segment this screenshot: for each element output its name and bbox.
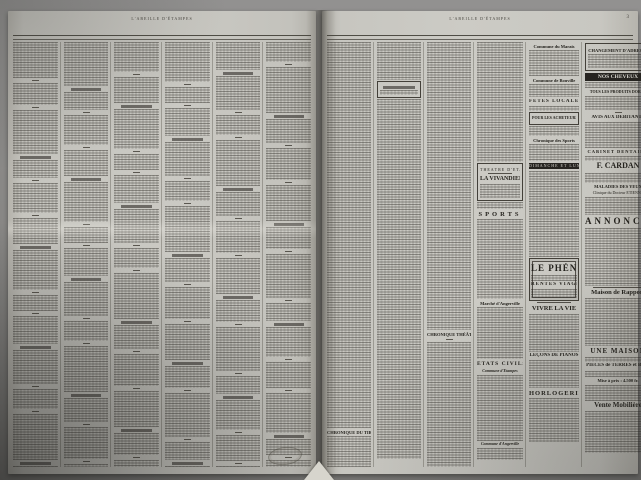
commune-marais-header: Commune du Marais (529, 44, 579, 49)
rentes-viageres-line: RENTES VIAGÈRES (531, 282, 577, 288)
text-block (529, 144, 579, 161)
notice-title-bar (383, 86, 414, 89)
text-block (585, 82, 641, 88)
text-block (64, 42, 109, 86)
separator-dash (83, 424, 90, 425)
page-corner-notch (304, 461, 334, 480)
text-block (585, 156, 641, 161)
commune-bouville-header: Commune de Bouville (529, 78, 579, 83)
cardan-ad-title: F. CARDAN (585, 162, 641, 171)
separator-dash (133, 172, 140, 173)
text-block (585, 173, 641, 183)
text-block (114, 175, 159, 203)
text-block (477, 448, 523, 460)
text-block (531, 289, 577, 298)
doret-ad-title: TOUS LES PRODUITS DORET (585, 90, 641, 94)
paragraph-lead (20, 246, 50, 249)
text-block (64, 150, 109, 176)
text-block (64, 92, 109, 110)
text-block (427, 42, 471, 330)
text-block (165, 258, 210, 282)
left-page-columns (13, 42, 311, 467)
paragraph-lead (223, 396, 253, 399)
text-block (165, 466, 210, 467)
separator-dash (235, 137, 242, 138)
acheteurs-notice-box: POUR LES ACHETEURS (529, 112, 579, 125)
market-report-header: Marché d'Angerville (477, 301, 523, 306)
paragraph-lead (274, 323, 304, 326)
maladies-yeux-title: MALADIES DES YEUX (585, 184, 641, 189)
horlogerie-ad-title: HORLOGERIE (529, 390, 579, 397)
paragraph-lead (20, 156, 50, 159)
text-block (477, 375, 523, 441)
market-table-block (477, 307, 523, 359)
text-column (212, 42, 261, 467)
text-block (216, 140, 261, 186)
text-column (262, 42, 311, 467)
text-block (588, 54, 641, 68)
dimanche-lundi-banner: DIMANCHE ET LUNDI (529, 163, 579, 169)
text-block (529, 50, 579, 76)
text-block (13, 350, 58, 384)
newspaper-page-left: L'ABEILLE D'ÉTAMPES (8, 11, 316, 474)
separator-dash (133, 151, 140, 152)
commune-etampes-subheader: Commune d'Étampes (477, 369, 523, 373)
text-block (585, 371, 641, 377)
separator-dash (235, 324, 242, 325)
separator-dash (285, 251, 292, 252)
vivre-la-vie-ad-title: VIVRE LA VIE (529, 305, 579, 312)
text-block (13, 110, 58, 154)
separator-dash (32, 313, 39, 314)
text-block (114, 109, 159, 149)
text-block (165, 42, 210, 82)
separator-dash (32, 386, 39, 387)
separator-dash (235, 463, 242, 464)
changement-adresse-title: CHANGEMENT D'ADRESSE (588, 48, 641, 53)
paragraph-lead (223, 72, 253, 75)
commune-angerville-subheader: Commune d'Angerville (477, 442, 523, 446)
text-block (216, 192, 261, 216)
separator-dash (184, 284, 191, 285)
separator-dash (83, 318, 90, 319)
text-block (165, 324, 210, 360)
text-block (216, 327, 261, 371)
text-block (529, 398, 579, 442)
text-block (64, 346, 109, 392)
paragraph-lead (274, 435, 304, 438)
running-title-right: L'ABEILLE D'ÉTAMPES (322, 16, 638, 21)
separator-dash (285, 359, 292, 360)
debitants-ad-title: AVIS AUX DÉBITANTS (585, 115, 641, 121)
text-column (60, 42, 109, 467)
text-column: THÉÂTRE D'ÉTAMPES LA VIVANDIÈRE SPORTS M… (473, 42, 523, 467)
text-block (216, 300, 261, 322)
text-block (165, 442, 210, 460)
vente-mobiliere-title: Vente Mobilière (585, 402, 641, 410)
page-number: 3 (627, 15, 630, 20)
text-block (165, 142, 210, 176)
text-column (13, 42, 58, 467)
text-block (13, 389, 58, 409)
separator-dash (235, 432, 242, 433)
text-block (477, 219, 523, 299)
separator-dash (285, 182, 292, 183)
text-block (216, 76, 261, 110)
section-header-etats-civils: ÉTATS CIVILS (477, 361, 523, 367)
text-block (165, 87, 210, 103)
separator-dash (285, 64, 292, 65)
text-block (266, 67, 311, 113)
nos-cheveux-ad-title: NOS CHEVEUX (585, 73, 641, 81)
paragraph-lead (172, 462, 202, 465)
mixed-column: Commune du Marais Commune de Bouville FÊ… (525, 42, 579, 467)
chronique-sports-header: Chronique des Sports (529, 138, 579, 143)
separator-dash (446, 339, 453, 340)
acheteurs-title: POUR LES ACHETEURS (532, 116, 576, 120)
text-block (13, 250, 58, 290)
separator-dash (32, 80, 39, 81)
text-block (13, 42, 58, 78)
text-block (585, 357, 641, 362)
text-block (216, 258, 261, 294)
separator-dash (184, 321, 191, 322)
text-block (380, 90, 418, 95)
text-block (114, 354, 159, 386)
text-block (529, 360, 579, 388)
separator-dash (133, 457, 140, 458)
text-block (13, 316, 58, 344)
center-gutter-shadow (306, 10, 336, 475)
text-block (165, 181, 210, 201)
header-double-rule (327, 35, 633, 40)
une-maison-title: UNE MAISON (585, 348, 641, 356)
text-block (64, 248, 109, 276)
section-header-sports: SPORTS (477, 211, 523, 218)
paragraph-lead (121, 321, 151, 324)
text-block (585, 96, 641, 110)
paragraph-lead (223, 296, 253, 299)
paragraph-lead (71, 278, 101, 281)
text-column: CHRONIQUE THÉÂTRALE (423, 42, 471, 467)
theatre-show-title: LA VIVANDIÈRE (480, 176, 520, 183)
separator-dash (285, 300, 292, 301)
text-block (216, 466, 261, 467)
text-column (110, 42, 159, 467)
text-column (373, 42, 421, 467)
section-header-chronique-theatrale: CHRONIQUE THÉÂTRALE (427, 332, 471, 337)
text-block (266, 393, 311, 433)
text-block (477, 42, 523, 162)
annonces-header: ANNONCES (585, 216, 641, 226)
paragraph-lead (274, 115, 304, 118)
separator-dash (133, 245, 140, 246)
separator-dash (285, 145, 292, 146)
text-block (165, 393, 210, 437)
changement-adresse-ad: CHANGEMENT D'ADRESSE (585, 43, 641, 71)
paragraph-lead (121, 429, 151, 432)
header-double-rule (13, 35, 311, 40)
separator-dash (184, 84, 191, 85)
separator-dash (285, 390, 292, 391)
separator-dash (235, 218, 242, 219)
phenix-ad-title: LE PHÉNIX (531, 263, 577, 273)
text-block (114, 248, 159, 268)
separator-dash (83, 343, 90, 344)
text-block (529, 171, 579, 257)
running-title-left: L'ABEILLE D'ÉTAMPES (8, 16, 316, 21)
text-block (64, 398, 109, 422)
separator-dash (83, 461, 90, 462)
scanned-newspaper-photo: L'ABEILLE D'ÉTAMPES L'ABEILLE D'ÉTAMPES … (0, 0, 641, 480)
text-block (13, 414, 58, 460)
separator-dash (133, 74, 140, 75)
divider-rule (537, 302, 571, 303)
text-block (216, 42, 261, 70)
paragraph-lead (121, 205, 151, 208)
separator-dash (83, 112, 90, 113)
text-block (531, 275, 577, 281)
text-block (529, 314, 579, 324)
separator-dash (32, 107, 39, 108)
text-block (266, 303, 311, 321)
text-block (13, 295, 58, 311)
separator-dash (184, 203, 191, 204)
text-block (64, 321, 109, 341)
text-block (114, 77, 159, 103)
separator-dash (133, 270, 140, 271)
text-block (480, 184, 520, 198)
text-block (216, 400, 261, 430)
pianos-ad-title: LEÇONS DE PIANOS (529, 353, 579, 359)
separator-dash (235, 112, 242, 113)
separator-dash (235, 255, 242, 256)
text-block (165, 108, 210, 136)
cabinet-dentaire-title: CABINET DENTAIRE (585, 149, 641, 154)
paper-fold-highlight (8, 220, 316, 238)
paragraph-lead (172, 254, 202, 257)
divider-rule (488, 173, 512, 174)
text-block (585, 122, 641, 148)
text-block (13, 466, 58, 467)
text-block (585, 298, 641, 346)
separator-dash (615, 112, 622, 113)
fetes-locales-header: FÊTES LOCALES (529, 99, 579, 105)
separator-dash (83, 147, 90, 148)
text-block (13, 83, 58, 105)
text-block (266, 254, 311, 298)
text-block (13, 183, 58, 213)
mise-a-prix-line: Mise à prix : 4.500 fr. (585, 378, 641, 383)
phenix-ad-box: LE PHÉNIX RENTES VIAGÈRES (529, 258, 579, 302)
text-block (377, 99, 421, 459)
text-block (114, 460, 159, 467)
text-block (266, 42, 311, 62)
text-block (427, 342, 471, 467)
maison-rapport-title: Maison de Rapport (585, 289, 641, 296)
newspaper-page-right: L'ABEILLE D'ÉTAMPES 3 CHRONIQUE DU TIR (322, 11, 638, 474)
theatre-venue: THÉÂTRE D'ÉTAMPES (480, 168, 520, 172)
text-block (529, 126, 579, 136)
paragraph-lead (20, 346, 50, 349)
paragraph-lead (121, 105, 151, 108)
separator-dash (133, 388, 140, 389)
text-block (585, 385, 641, 401)
text-block (216, 115, 261, 135)
text-block (64, 182, 109, 222)
separator-dash (83, 245, 90, 246)
text-block (64, 282, 109, 316)
classifieds-block (585, 228, 641, 286)
theatre-ad-box: THÉÂTRE D'ÉTAMPES LA VIVANDIÈRE (477, 163, 523, 201)
text-block (266, 185, 311, 221)
paragraph-lead (71, 88, 101, 91)
text-block (585, 411, 641, 453)
separator-dash (32, 180, 39, 181)
text-block (266, 148, 311, 180)
divider-rule (593, 287, 641, 288)
ads-column: CHANGEMENT D'ADRESSE NOS CHEVEUX TOUS LE… (581, 42, 641, 467)
text-block (529, 324, 579, 352)
separator-dash (32, 411, 39, 412)
text-column (161, 42, 210, 467)
separator-dash (184, 105, 191, 106)
text-block (64, 427, 109, 459)
clinique-line: Clinique du Docteur ÉTIENNE (585, 191, 641, 195)
paragraph-lead (71, 178, 101, 181)
separator-dash (133, 351, 140, 352)
paragraph-lead (172, 362, 202, 365)
separator-dash (184, 178, 191, 179)
separator-dash (32, 215, 39, 216)
text-block (216, 435, 261, 461)
text-block (266, 327, 311, 357)
text-block (266, 119, 311, 143)
text-block (585, 197, 641, 215)
text-block (114, 273, 159, 319)
pieces-terres-title: PIÈCES de TERRES et BOIS (585, 363, 641, 369)
separator-dash (235, 373, 242, 374)
boxed-notice (377, 81, 421, 98)
right-page-columns: CHRONIQUE DU TIR CHRONIQUE THÉÂTRALE (327, 42, 633, 467)
paragraph-lead (172, 138, 202, 141)
text-block (114, 325, 159, 349)
separator-dash (32, 292, 39, 293)
text-block (114, 391, 159, 427)
text-block (114, 433, 159, 455)
paragraph-lead (71, 394, 101, 397)
text-block (216, 376, 261, 394)
text-block (529, 84, 579, 97)
paragraph-lead (20, 462, 50, 465)
text-block (477, 202, 523, 209)
paragraph-lead (223, 188, 253, 191)
text-block (529, 106, 579, 111)
text-block (165, 366, 210, 388)
text-block (114, 42, 159, 72)
text-block (64, 464, 109, 467)
text-block (266, 362, 311, 388)
text-block (114, 154, 159, 170)
text-block (165, 287, 210, 319)
separator-dash (184, 390, 191, 391)
separator-dash (184, 439, 191, 440)
text-block (13, 160, 58, 178)
text-block (377, 42, 421, 80)
text-block (64, 115, 109, 145)
